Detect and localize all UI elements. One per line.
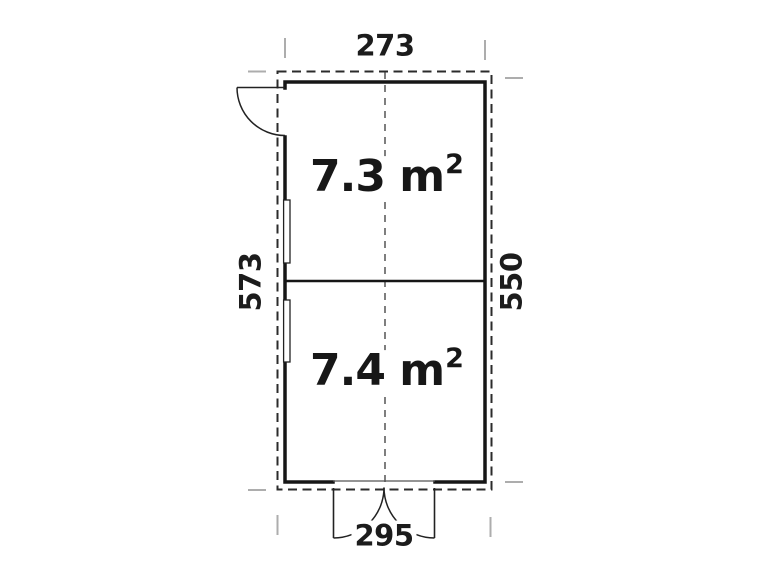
dimension-right-depth-label: 550 [497, 249, 528, 314]
room-2-area-text: 7.4 m [310, 345, 444, 396]
room-1-area-label: 7.3 m2 [306, 156, 466, 198]
room-2-area-label: 7.4 m2 [306, 350, 466, 392]
dimension-bottom-width-label: 295 [351, 521, 416, 552]
dimension-left-depth-label: 573 [236, 249, 267, 314]
room-1-area-superscript: 2 [445, 149, 463, 180]
floor-plan-drawing [0, 0, 770, 578]
room-1-area-text: 7.3 m [310, 151, 444, 202]
window-lower-room [284, 300, 290, 362]
dimension-top-width-label: 273 [352, 31, 417, 62]
room-2-area-superscript: 2 [445, 343, 463, 374]
floor-plan: 273 573 550 295 7.3 m2 7.4 m2 [0, 0, 770, 578]
window-upper-room [284, 200, 290, 263]
